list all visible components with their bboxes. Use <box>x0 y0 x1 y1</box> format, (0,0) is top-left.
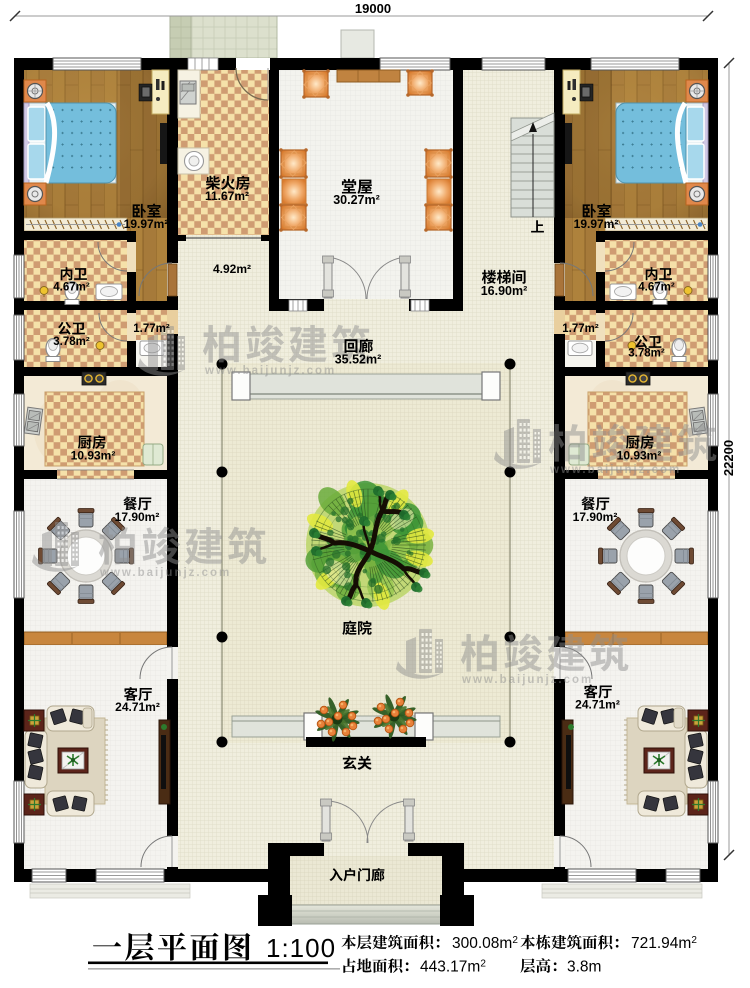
svg-text:19.97m²: 19.97m² <box>574 217 619 231</box>
svg-text:19.97m²: 19.97m² <box>124 217 169 231</box>
svg-text:www.baijunjz.com: www.baijunjz.com <box>99 567 231 579</box>
svg-text:www.baijunjz.com: www.baijunjz.com <box>204 365 336 377</box>
svg-text:19000: 19000 <box>355 1 391 16</box>
svg-text:16.90m²: 16.90m² <box>481 284 528 298</box>
svg-text:24.71m²: 24.71m² <box>575 698 620 712</box>
svg-text:1.77m²: 1.77m² <box>562 323 599 335</box>
svg-text:22200: 22200 <box>721 440 736 476</box>
svg-text:4.67m²: 4.67m² <box>53 282 90 294</box>
svg-text:443.17m2: 443.17m2 <box>420 959 486 976</box>
svg-text:11.67m²: 11.67m² <box>205 189 249 203</box>
svg-text:17.90m²: 17.90m² <box>573 510 618 524</box>
svg-text:10.93m²: 10.93m² <box>617 449 662 463</box>
svg-text:3.78m²: 3.78m² <box>53 336 90 348</box>
svg-text:www.baijunjz.com: www.baijunjz.com <box>549 464 681 476</box>
svg-text:721.94m2: 721.94m2 <box>631 935 697 952</box>
svg-text:4.67m²: 4.67m² <box>638 282 675 294</box>
svg-text:3.8m: 3.8m <box>567 959 601 976</box>
svg-text:3.78m²: 3.78m² <box>628 348 665 360</box>
svg-text:4.92m²: 4.92m² <box>213 262 251 276</box>
svg-text:24.71m²: 24.71m² <box>115 700 160 714</box>
svg-text:1:100: 1:100 <box>266 933 336 963</box>
svg-text:300.08m2: 300.08m2 <box>452 935 518 952</box>
svg-text:www.baijunjz.com: www.baijunjz.com <box>461 674 593 686</box>
svg-text:17.90m²: 17.90m² <box>115 510 160 524</box>
svg-text:10.93m²: 10.93m² <box>71 449 116 463</box>
svg-text:35.52m²: 35.52m² <box>335 353 382 367</box>
svg-text:30.27m²: 30.27m² <box>333 193 380 207</box>
svg-text:1.77m²: 1.77m² <box>133 323 170 335</box>
